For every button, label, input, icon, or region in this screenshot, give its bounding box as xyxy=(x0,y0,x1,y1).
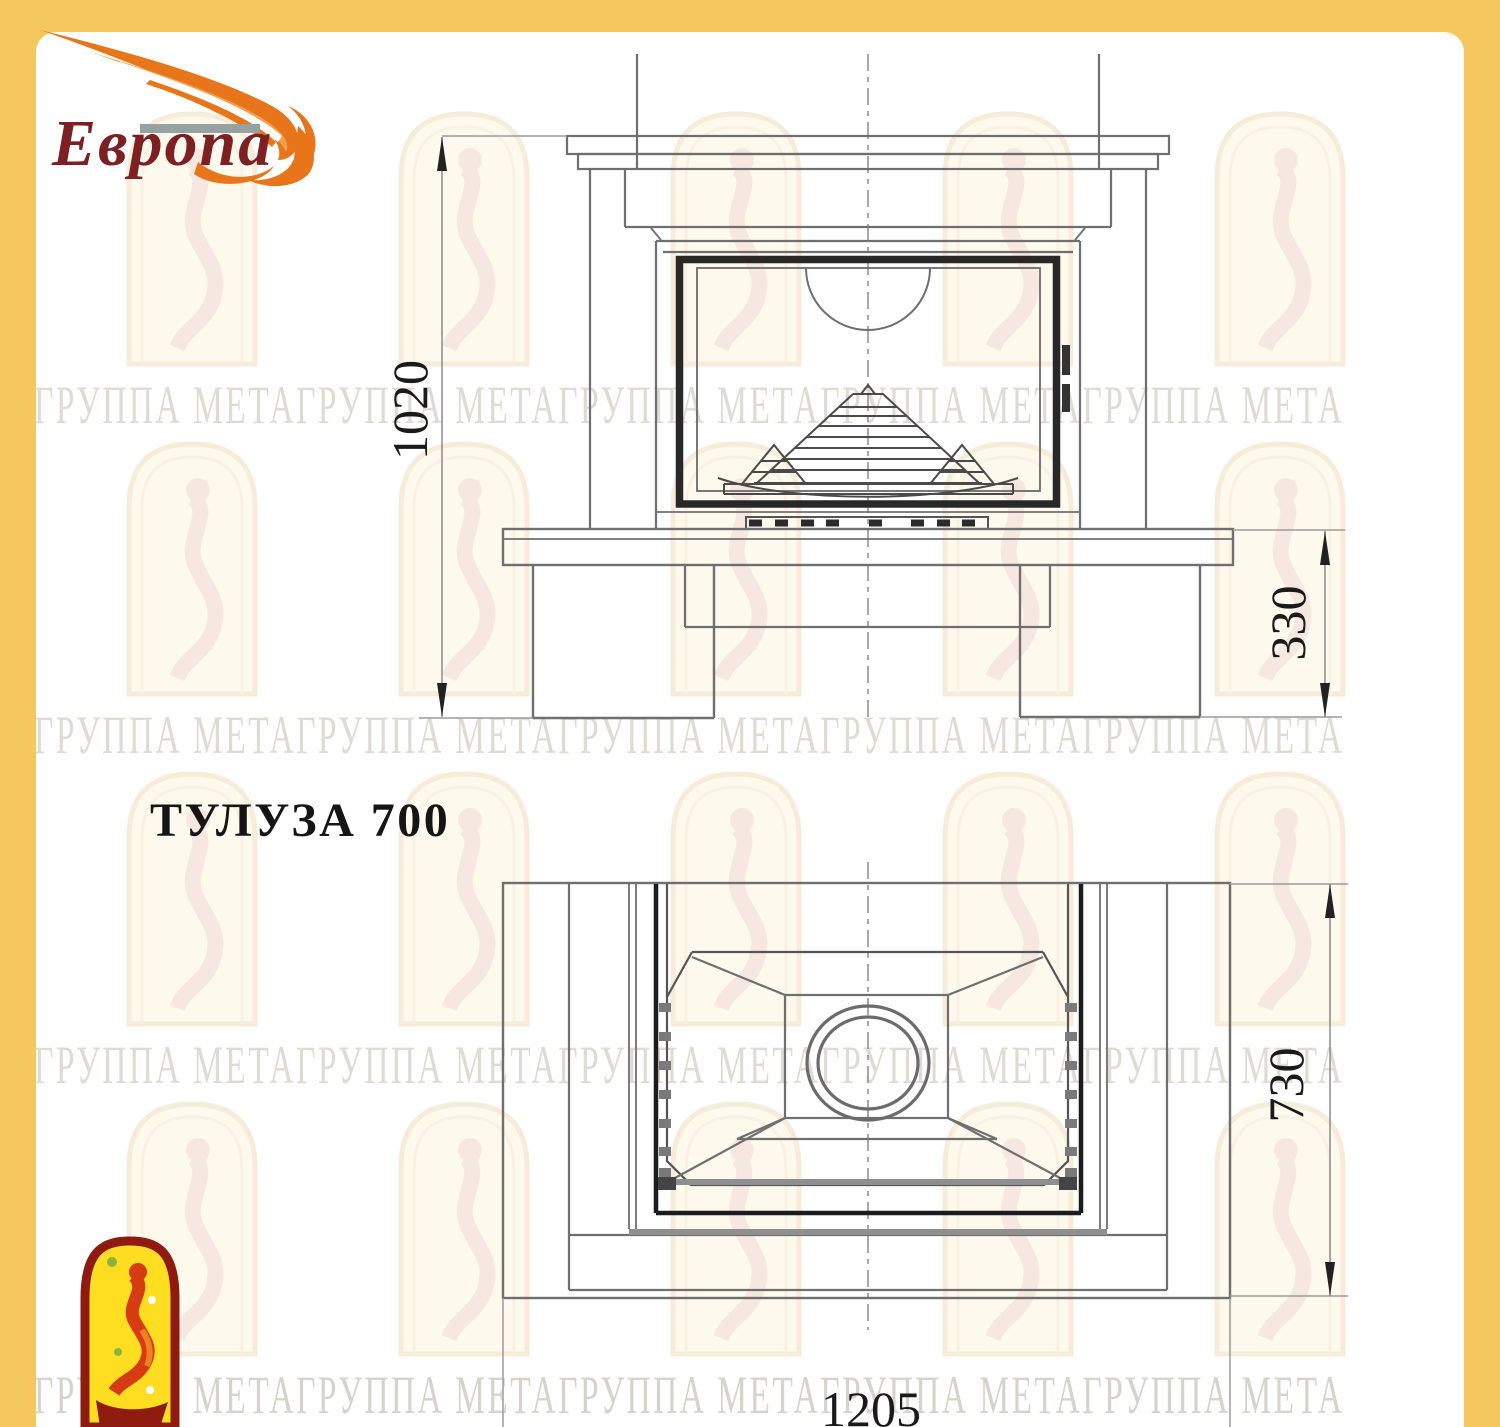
svg-text:1205: 1205 xyxy=(821,1381,921,1427)
svg-text:ГРУППА МЕТАГРУППА МЕТАГРУППА М: ГРУППА МЕТАГРУППА МЕТАГРУППА МЕТАГРУППА … xyxy=(34,375,1345,435)
svg-text:1020: 1020 xyxy=(382,360,438,460)
svg-text:Европа: Европа xyxy=(51,107,273,180)
svg-text:ГРУППА МЕТАГРУППА МЕТАГРУППА М: ГРУППА МЕТАГРУППА МЕТАГРУППА МЕТАГРУППА … xyxy=(34,1365,1345,1425)
svg-text:330: 330 xyxy=(1260,586,1316,661)
svg-text:ГРУППА МЕТАГРУППА МЕТАГРУППА М: ГРУППА МЕТАГРУППА МЕТАГРУППА МЕТАГРУППА … xyxy=(34,705,1345,765)
svg-text:ГРУППА МЕТАГРУППА МЕТАГРУППА М: ГРУППА МЕТАГРУППА МЕТАГРУППА МЕТАГРУППА … xyxy=(34,1035,1345,1095)
svg-text:ТУЛУЗА 700: ТУЛУЗА 700 xyxy=(150,794,450,847)
svg-text:730: 730 xyxy=(1258,1048,1314,1123)
